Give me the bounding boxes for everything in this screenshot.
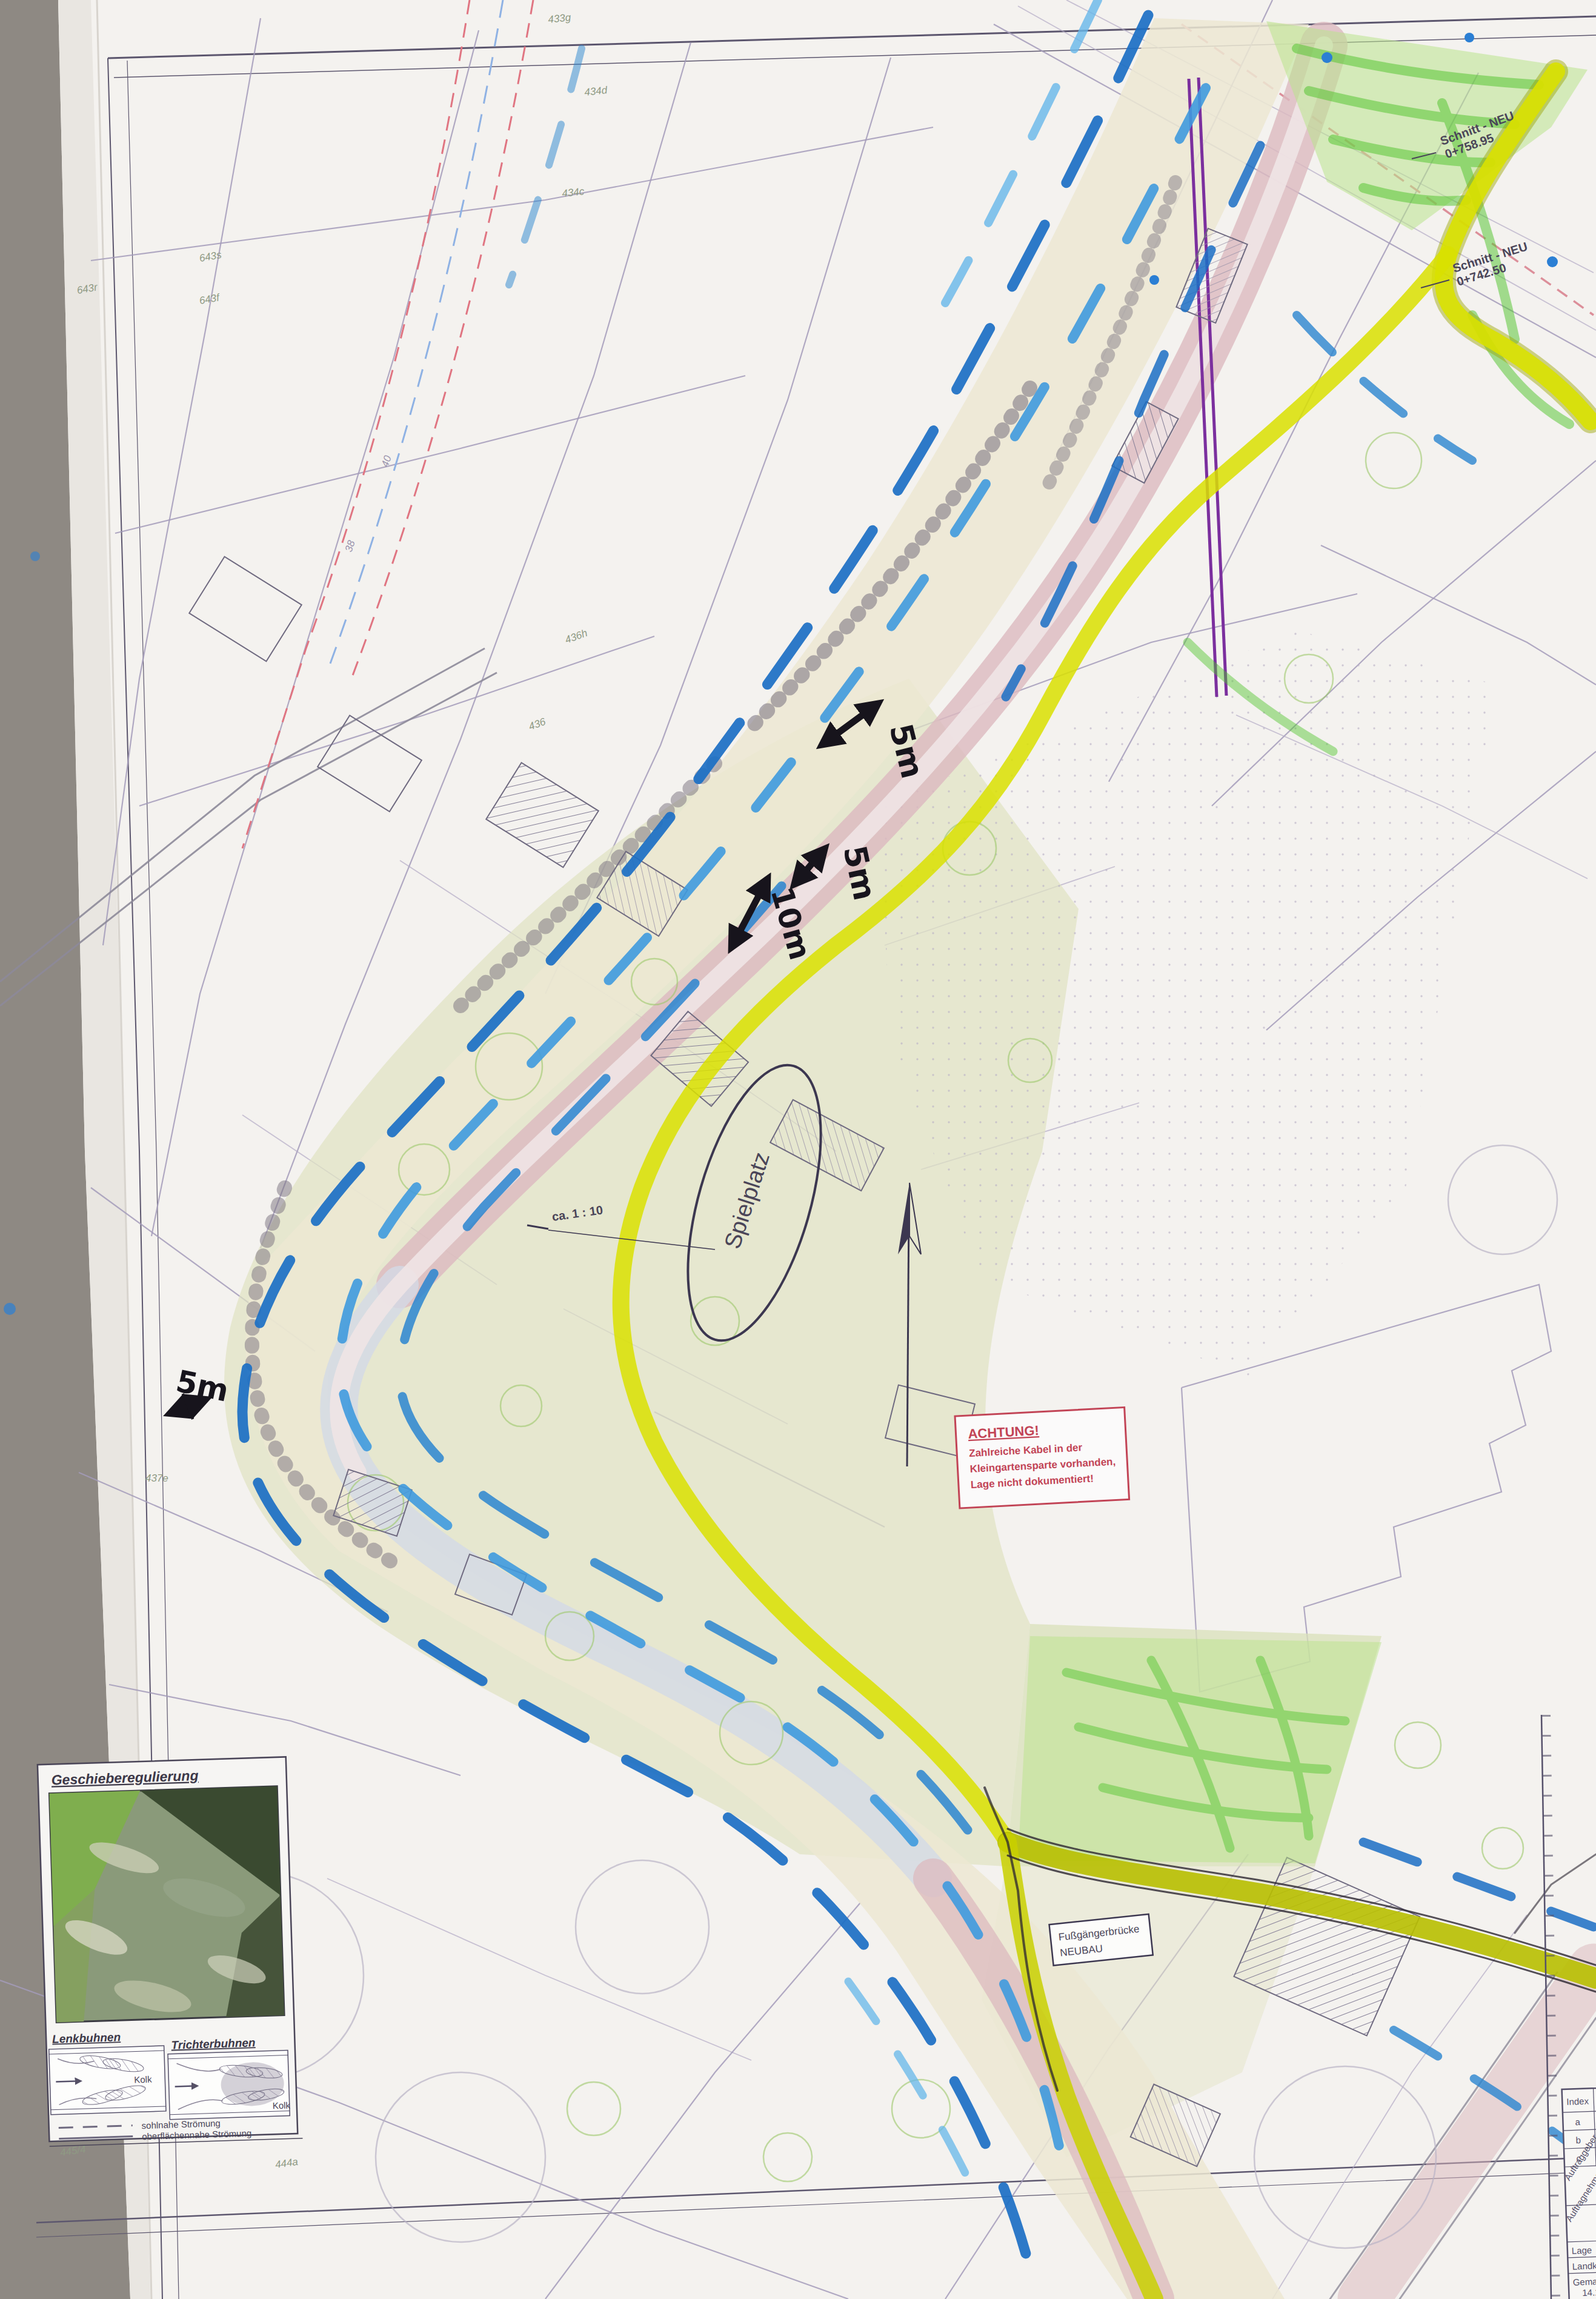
kolk-label-right: Kolk [273, 2100, 291, 2111]
parcel-label: 434c [561, 185, 585, 199]
titleblock-row: Gemarkung [1572, 2275, 1596, 2287]
lenkbuhnen-diagram: Kolk [49, 2046, 166, 2115]
titleblock-row: Index [1566, 2096, 1589, 2107]
titleblock-row: Landkreis [1572, 2260, 1596, 2271]
stream-photo [49, 1786, 284, 2023]
parcel-label: 437e [145, 1472, 168, 1484]
titleblock-row: Lage [1572, 2245, 1592, 2256]
titleblock-row: a [1575, 2117, 1581, 2127]
legend-trichterbuhnen-label: Trichterbuhnen [171, 2036, 256, 2051]
warning-box: ACHTUNG! Zahlreiche Kabel in der Kleinga… [955, 1408, 1129, 1508]
parcel-label: 433g [547, 12, 571, 25]
kolk-label-left: Kolk [134, 2074, 152, 2085]
trichterbuhnen-diagram: Kolk [168, 2050, 291, 2119]
titleblock-row: 14.10. [1582, 2287, 1596, 2298]
parcel-label: 434d [584, 84, 608, 98]
legend-lenkbuhnen-label: Lenkbuhnen [52, 2031, 121, 2046]
site-plan-photo: 433g 434d 434c 40 38 436h 436 437e 643s … [0, 0, 1596, 2299]
legend-box: Geschieberegulierung Lenkbuhnen Trichter… [38, 1757, 303, 2146]
titleblock-row: b [1575, 2135, 1581, 2145]
